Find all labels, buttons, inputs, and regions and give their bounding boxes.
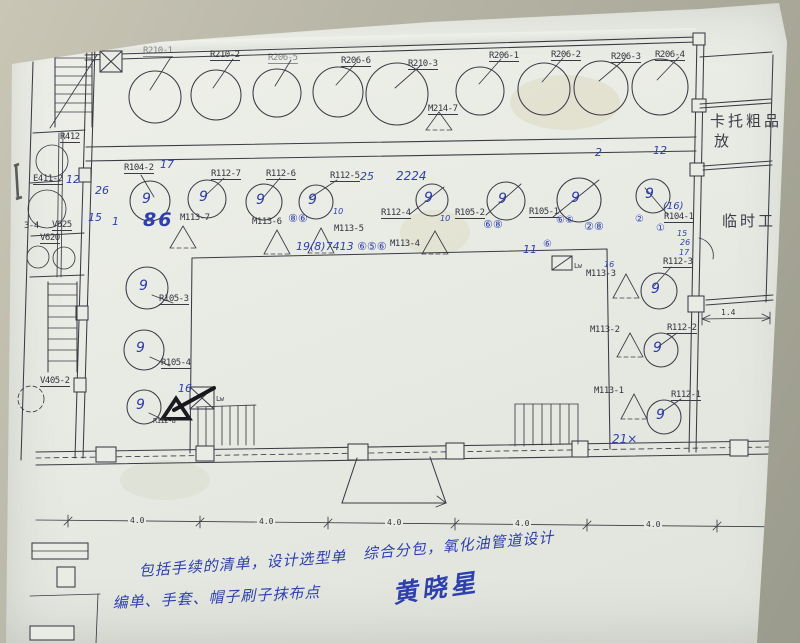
equipment-label: R105-3 bbox=[159, 294, 189, 305]
mixer-triangle bbox=[264, 230, 277, 254]
vessel-pen-mark: 9 bbox=[653, 340, 662, 356]
equipment-label: R104-1 bbox=[664, 212, 694, 223]
mixer-triangle bbox=[630, 333, 643, 357]
pen-annotation: 10 bbox=[440, 214, 450, 223]
equipment-label: R112-5 bbox=[330, 171, 360, 182]
mixer-triangle bbox=[617, 333, 630, 357]
stairs-left-mid bbox=[48, 282, 77, 372]
pen-annotation: 12 bbox=[653, 144, 667, 157]
equipment-label: R412 bbox=[60, 132, 80, 143]
equipment-label: R105-4 bbox=[161, 358, 191, 369]
equipment-label: M113-3 bbox=[586, 269, 616, 279]
paper-sheet: 99999999999999R210-1R210-2R206-5R206-6R2… bbox=[0, 0, 800, 643]
lift-label: Lw bbox=[216, 395, 223, 403]
photo-background: 99999999999999R210-1R210-2R206-5R206-6R2… bbox=[0, 0, 800, 643]
pen-annotation: ⑥ bbox=[543, 239, 552, 250]
equipment-label: R210-2 bbox=[210, 50, 240, 61]
pen-annotation: 2224 bbox=[396, 169, 427, 183]
leader-line bbox=[150, 57, 171, 90]
vessel-circle bbox=[632, 59, 688, 115]
room-label: 临时工 bbox=[722, 210, 776, 231]
leader-line bbox=[213, 59, 233, 88]
pen-annotation: 17 bbox=[160, 158, 174, 171]
vessel-pen-mark: 9 bbox=[136, 397, 145, 413]
mixer-triangle bbox=[277, 230, 290, 254]
mixer-triangle bbox=[634, 394, 647, 419]
dimension-label: 4.0 bbox=[644, 520, 662, 529]
equipment-label: M214-7 bbox=[428, 104, 458, 115]
vessel-pen-mark: 9 bbox=[571, 190, 580, 206]
equipment-label: R206-2 bbox=[551, 50, 581, 61]
central-hall bbox=[190, 249, 610, 453]
vessel-pen-mark: 9 bbox=[142, 191, 151, 207]
pen-annotation: ②⑧ bbox=[584, 220, 604, 233]
dimension-label: 4.0 bbox=[128, 516, 146, 525]
vessel-pen-mark: 9 bbox=[645, 186, 654, 202]
stairs-bottom-left bbox=[196, 405, 256, 446]
equipment-label: R105-2 bbox=[455, 208, 485, 219]
equipment-label: M113-5 bbox=[334, 224, 364, 234]
pen-annotation: 21× bbox=[612, 432, 637, 446]
vessel-pen-mark: 9 bbox=[651, 281, 660, 297]
equipment-label: R112-3 bbox=[663, 257, 693, 268]
equipment-label: M113-6 bbox=[252, 217, 282, 227]
vessel-pen-mark: 9 bbox=[424, 190, 433, 206]
mixer-triangle bbox=[626, 274, 639, 298]
dimension-label: 4.0 bbox=[257, 517, 275, 526]
pen-annotation: ⑥⑧ bbox=[483, 218, 503, 231]
pen-annotation: 16 bbox=[178, 382, 192, 395]
lift-label: Lw bbox=[574, 262, 581, 270]
equipment-label: R112-4 bbox=[381, 208, 411, 219]
equipment-label: R112-2 bbox=[667, 323, 697, 334]
lift-box-hall bbox=[552, 256, 572, 270]
dimension-label: 1.4 bbox=[719, 308, 737, 317]
pen-annotation: ① bbox=[656, 223, 665, 234]
stairs-top-left bbox=[50, 52, 97, 128]
mixer-triangle bbox=[422, 231, 435, 254]
pen-annotation: 15 bbox=[88, 211, 102, 224]
pen-annotation: 11 bbox=[523, 243, 537, 256]
equipment-label: M113-7 bbox=[180, 213, 210, 223]
bottom-left-structures bbox=[30, 543, 100, 643]
equipment-label: V405-2 bbox=[40, 376, 70, 387]
vessel-pen-mark: 9 bbox=[136, 340, 145, 356]
vessel-circle bbox=[456, 67, 504, 115]
equipment-label: R210-1 bbox=[143, 46, 173, 57]
mixer-triangle bbox=[183, 226, 196, 248]
vessel-pen-mark: 9 bbox=[656, 407, 665, 423]
pen-annotation: 2 bbox=[2, 428, 9, 441]
equipment-label: R112-1 bbox=[671, 390, 701, 401]
dimension-line-bottom bbox=[36, 515, 795, 532]
pen-annotation: 86 bbox=[143, 209, 173, 231]
pen-annotation: 10 bbox=[333, 207, 343, 216]
vessel-circle bbox=[191, 70, 241, 120]
entrance-ramp bbox=[342, 457, 446, 507]
equipment-label: R206-1 bbox=[489, 51, 519, 62]
leader-line bbox=[542, 58, 563, 82]
vessel-pen-mark: 9 bbox=[139, 278, 148, 294]
pen-annotation: (16) bbox=[663, 201, 684, 212]
vessel-circle bbox=[518, 63, 570, 115]
equipment-label: R206-3 bbox=[611, 52, 641, 63]
equipment-label: R206-4 bbox=[655, 50, 685, 61]
vessel-circle bbox=[366, 63, 428, 125]
vessel-circle bbox=[129, 71, 181, 123]
room-label: 放 bbox=[714, 130, 732, 151]
equipment-label: R105-1 bbox=[529, 207, 559, 218]
pen-annotation: 26 bbox=[680, 238, 690, 247]
equipment-label: M113-2 bbox=[590, 325, 620, 335]
equipment-label: R206-5 bbox=[268, 53, 298, 64]
dimension-label: 4.0 bbox=[770, 521, 788, 530]
stairs-bottom-right bbox=[515, 404, 578, 446]
pen-annotation: 25 bbox=[360, 170, 374, 183]
pen-annotation: 26 bbox=[95, 184, 109, 197]
equipment-label: R104-2 bbox=[124, 163, 154, 174]
equipment-label: M113-4 bbox=[390, 239, 420, 249]
pen-annotation: 15 bbox=[677, 229, 687, 238]
pen-annotation: 17 bbox=[679, 248, 689, 257]
equipment-label: R210-3 bbox=[408, 59, 438, 70]
equipment-label: R112-8 bbox=[153, 417, 175, 425]
corridor-lines bbox=[86, 137, 696, 161]
pen-annotation: ② bbox=[635, 214, 644, 225]
vessel-circle bbox=[253, 69, 301, 117]
pen-annotation: 2 bbox=[595, 146, 602, 159]
dimension-label: 4.0 bbox=[385, 518, 403, 527]
leader-line bbox=[263, 178, 280, 198]
pen-annotation: 1 bbox=[112, 215, 119, 228]
equipment-label: 3-4 bbox=[24, 221, 39, 231]
vessel-pen-mark: 9 bbox=[256, 192, 265, 208]
pen-annotation: ⑧⑥ bbox=[288, 212, 308, 225]
dimension-label: 4.0 bbox=[513, 519, 531, 528]
pen-annotation: 12 bbox=[66, 173, 80, 186]
pen-annotation: 19(8)7413 ⑥⑤⑥ bbox=[296, 240, 387, 253]
lift-box-top bbox=[100, 51, 122, 72]
room-label: 卡托粗品 bbox=[710, 110, 782, 131]
vessel-circle bbox=[313, 67, 363, 117]
equipment-label: R112-6 bbox=[266, 169, 296, 180]
vessel-pen-mark: 9 bbox=[498, 191, 507, 207]
mixer-triangle bbox=[621, 394, 634, 419]
leader-line bbox=[479, 59, 501, 84]
staple bbox=[14, 164, 22, 199]
pen-annotation: ⑥⑥ bbox=[556, 215, 574, 226]
mixer-triangle bbox=[435, 231, 448, 254]
equipment-label: E411-2 bbox=[33, 174, 63, 185]
equipment-label: M113-1 bbox=[594, 386, 624, 396]
vessel-pen-mark: 9 bbox=[199, 189, 208, 205]
vessel-circle bbox=[574, 61, 628, 115]
equipment-label: V620 bbox=[40, 233, 60, 244]
equipment-label: V625 bbox=[52, 220, 72, 231]
equipment-label: R112-7 bbox=[211, 169, 241, 180]
pen-annotation: 16 bbox=[604, 260, 614, 269]
equipment-label: R206-6 bbox=[341, 56, 371, 67]
vessel-pen-mark: 9 bbox=[308, 192, 317, 208]
